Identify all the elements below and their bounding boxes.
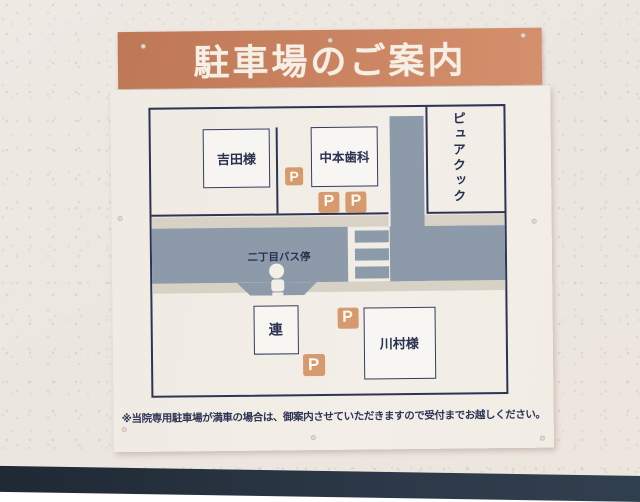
building-label-purecook: ピュアクック — [448, 111, 468, 211]
road-vertical — [389, 116, 425, 281]
parking-spot-icon: P — [345, 191, 366, 212]
map-frame: 二丁目バス停 吉田様 中本歯科 ピュアクック 連 川村様 — [148, 104, 508, 398]
building-box-nakamoto: 中本歯科 — [311, 126, 379, 187]
parking-spot-icon: P — [337, 307, 358, 328]
boundary-line-purecook — [425, 107, 428, 213]
parking-guide-sign: 駐車場のご案内 — [0, 0, 640, 483]
bus-stop-icon — [269, 263, 284, 278]
sidewalk-top-right — [425, 214, 505, 226]
screw-icon — [521, 33, 526, 38]
boundary-line-divider — [276, 127, 278, 213]
sign-board: 二丁目バス停 吉田様 中本歯科 ピュアクック 連 川村様 — [110, 86, 554, 453]
parking-spot-icon: P — [318, 191, 339, 212]
bus-stop-icon — [272, 292, 283, 295]
sign-header-plate: 駐車場のご案内 — [118, 28, 543, 89]
wall-background: 駐車場のご案内 — [0, 0, 640, 480]
screw-icon — [122, 427, 127, 432]
crosswalk-stripe — [355, 266, 389, 278]
parking-spot-icon: P — [302, 353, 324, 375]
screw-icon — [311, 435, 316, 440]
crosswalk-stripe — [355, 230, 389, 242]
screw-icon — [118, 216, 123, 221]
crosswalk-stripe — [355, 248, 389, 260]
bus-stop-icon — [271, 279, 284, 291]
screw-icon — [141, 44, 146, 49]
screw-icon — [532, 219, 537, 224]
building-label: 連 — [269, 319, 283, 339]
road-horizontal — [152, 225, 506, 284]
building-box-kawamura: 川村様 — [363, 306, 436, 379]
parking-spot-icon: P — [285, 167, 303, 185]
building-box-ren: 連 — [253, 305, 299, 354]
screw-icon — [328, 38, 333, 43]
note-text: ※当院専用駐車場が満車の場合は、御案内させていただきますので受付までお越しくださ… — [114, 407, 554, 427]
building-label: 吉田様 — [217, 148, 256, 167]
screw-icon — [540, 436, 545, 441]
building-label: 川村様 — [380, 333, 419, 352]
building-label: 中本歯科 — [319, 146, 369, 166]
building-box-yoshida: 吉田様 — [203, 128, 271, 188]
crosswalk — [348, 226, 391, 281]
bus-stop-label: 二丁目バス停 — [240, 249, 318, 265]
